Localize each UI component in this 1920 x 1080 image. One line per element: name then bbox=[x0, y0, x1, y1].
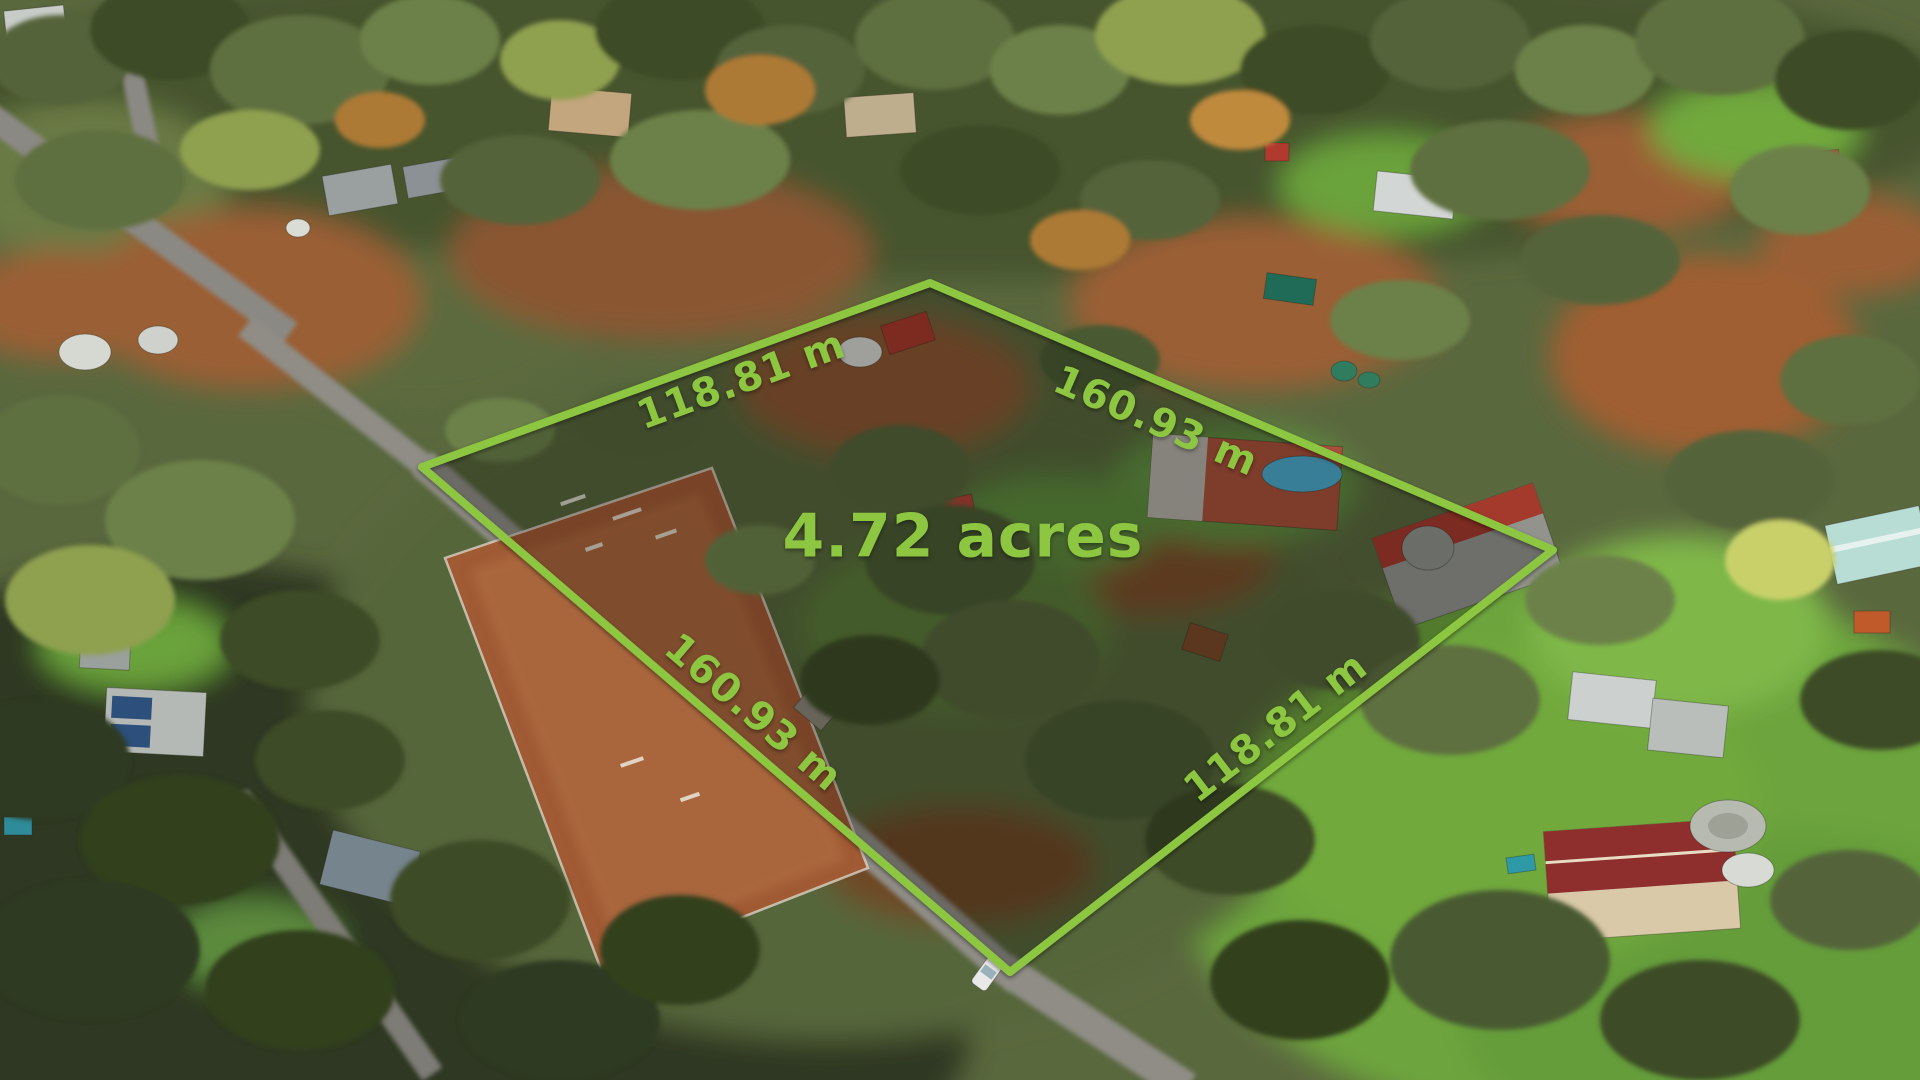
water-tank-white-3 bbox=[286, 219, 310, 237]
area-label: 4.72 acres bbox=[783, 502, 1144, 572]
house-tan-2 bbox=[844, 93, 917, 138]
shed-white-se-1 bbox=[1568, 672, 1657, 729]
trampoline-teal bbox=[1506, 854, 1536, 874]
shed-white-se-2 bbox=[1647, 698, 1728, 758]
water-tank-white-2 bbox=[138, 326, 178, 354]
photo-canvas: 118.81 m 160.93 m 160.93 m 118.81 m 4.72… bbox=[0, 0, 1920, 1080]
aerial-property-photo: 118.81 m 160.93 m 160.93 m 118.81 m 4.72… bbox=[0, 0, 1920, 1080]
solar-panels bbox=[111, 696, 152, 720]
shed-orange bbox=[1854, 611, 1890, 633]
dome-white-se bbox=[1722, 853, 1774, 887]
shed-red-dot bbox=[1265, 143, 1289, 161]
tank-green-2 bbox=[1358, 372, 1380, 388]
water-tank-white-1 bbox=[59, 334, 111, 370]
shed-teal-west bbox=[4, 817, 32, 835]
tank-green-1 bbox=[1331, 361, 1357, 381]
